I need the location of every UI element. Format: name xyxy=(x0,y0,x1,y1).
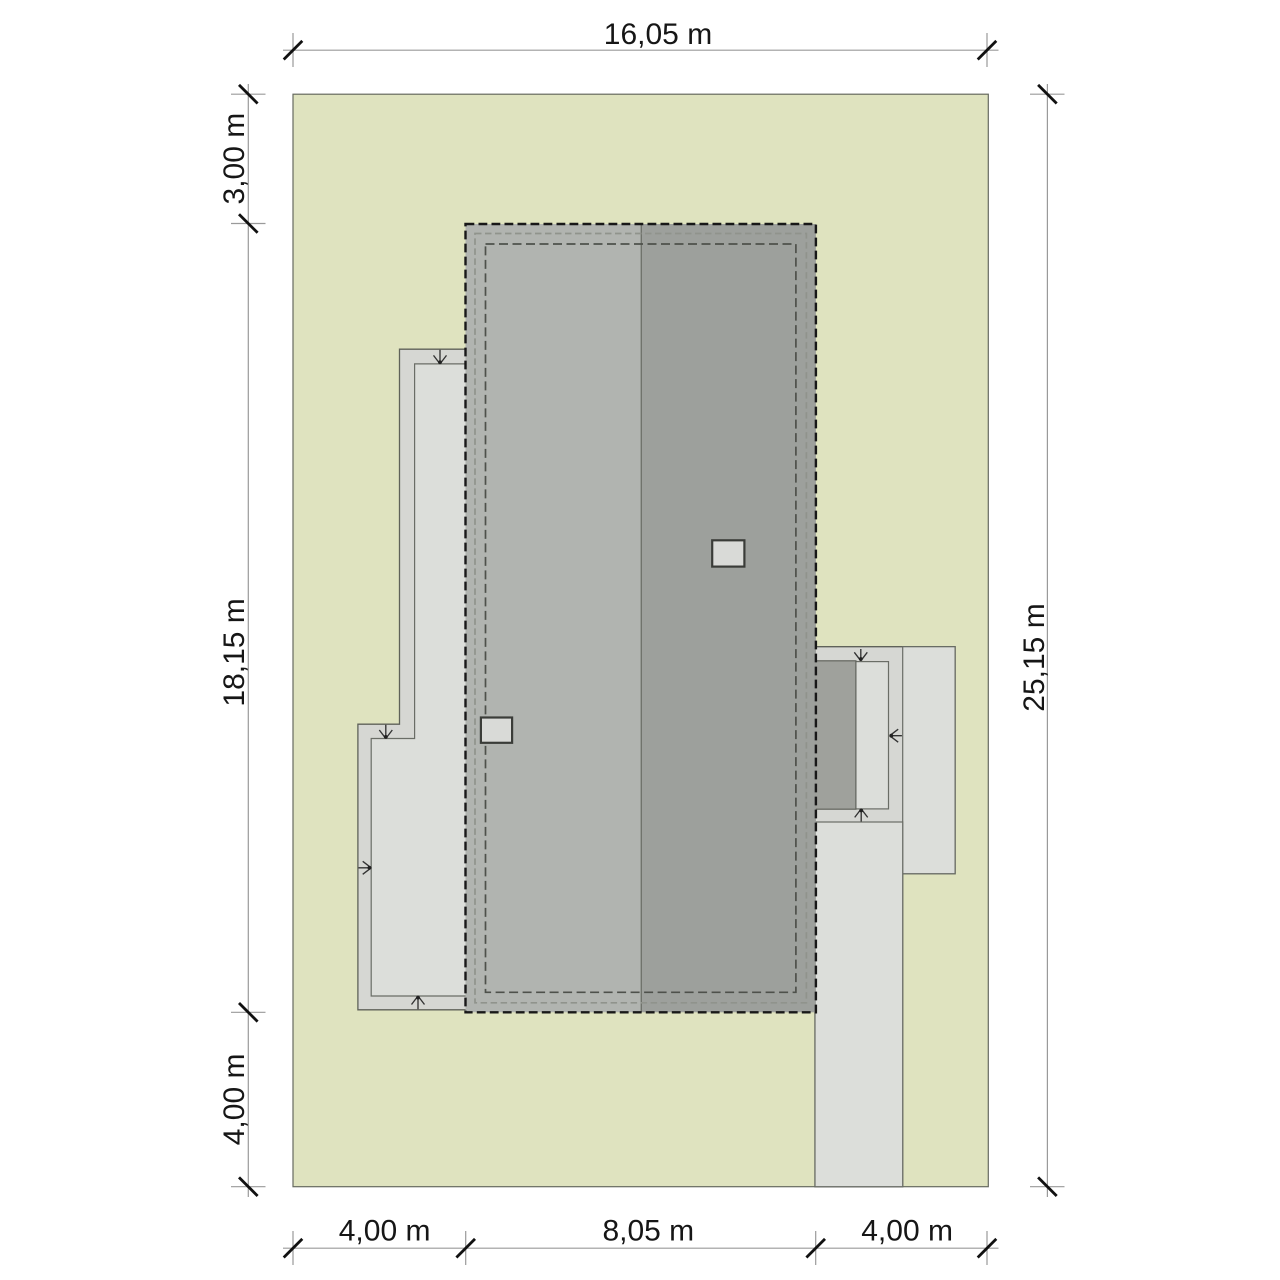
svg-text:4,00 m: 4,00 m xyxy=(218,1054,251,1146)
svg-text:3,00 m: 3,00 m xyxy=(218,113,251,205)
svg-text:16,05 m: 16,05 m xyxy=(604,18,712,51)
svg-text:4,00 m: 4,00 m xyxy=(861,1215,953,1248)
svg-text:25,15 m: 25,15 m xyxy=(1018,603,1051,711)
svg-text:4,00 m: 4,00 m xyxy=(339,1215,431,1248)
svg-text:18,15 m: 18,15 m xyxy=(218,598,251,706)
svg-text:8,05 m: 8,05 m xyxy=(602,1215,694,1248)
